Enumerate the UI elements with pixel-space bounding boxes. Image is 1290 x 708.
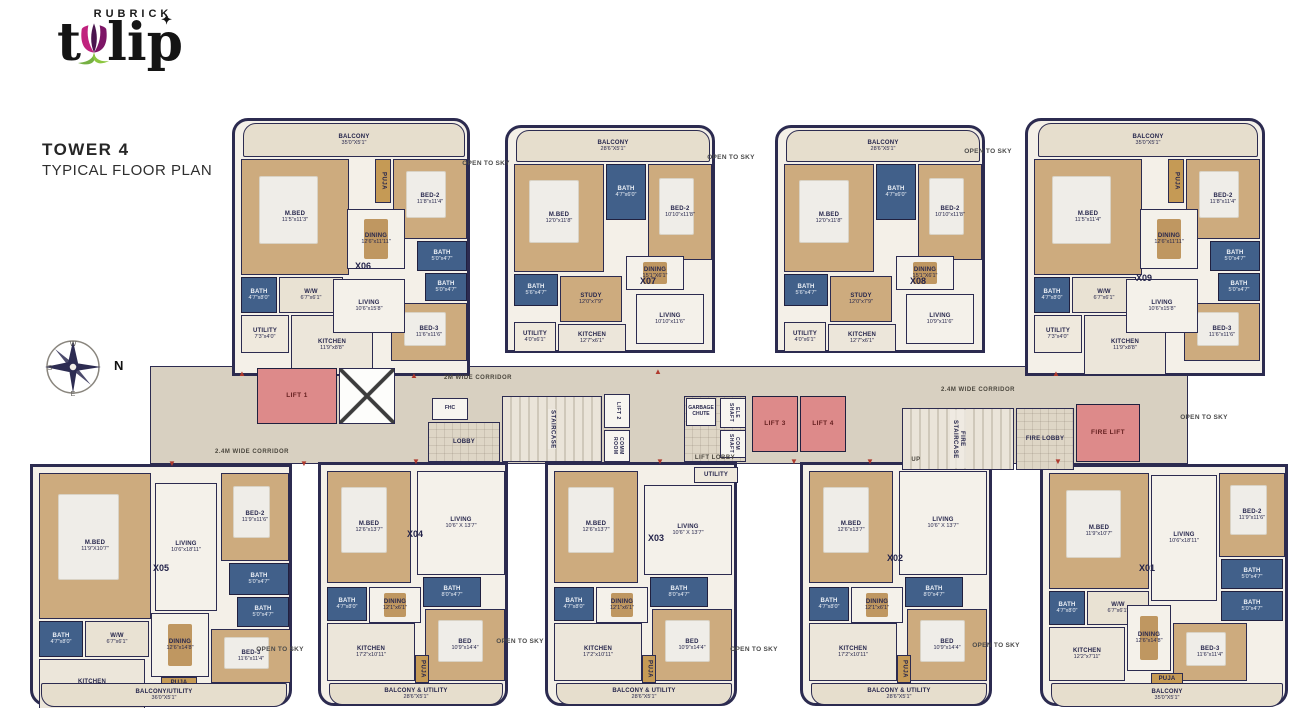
dining-room: DINING12'6"x14'8" — [151, 613, 209, 677]
bed-2-room: BED-211'9"x11'6" — [1219, 473, 1285, 557]
kitchen-room: KITCHEN12'2"x7'11" — [1049, 627, 1125, 681]
utility-room: UTILITY7'3"x4'0" — [241, 315, 289, 353]
unit-number-label: X09 — [1136, 273, 1152, 283]
living-room: LIVING10'6"x18'11" — [155, 483, 217, 611]
bath-room: BATH5'0"x4'7" — [1218, 273, 1260, 301]
dining-room: DINING12'6"x11'11" — [1140, 209, 1198, 269]
bath-room: BATH8'0"x4'7" — [905, 577, 963, 607]
bath-room: BATH5'6"x4'7" — [514, 274, 558, 306]
open-to-sky-label: OPEN TO SKY — [730, 646, 778, 654]
unit-x07: BALCONY28'6"X5'1"M.BED12'0"x11'8"BATH4'7… — [505, 125, 715, 353]
open-to-sky-label: OPEN TO SKY — [256, 646, 304, 654]
staircase: STAIRCASE — [502, 396, 602, 462]
lift-lobby: LIFT LOBBY — [684, 452, 746, 464]
door-arrow-icon: ▼ — [168, 460, 176, 468]
lift-4: LIFT 4 — [800, 396, 846, 452]
puja-room: PUJA — [1168, 159, 1184, 203]
unit-number-label: X02 — [887, 553, 903, 563]
open-to-sky-label: OPEN TO SKY — [964, 148, 1012, 156]
puja-room: PUJA — [375, 159, 391, 203]
dining-room: DINING12'6"x14'8" — [1127, 605, 1171, 671]
m-bed-room: M.BED12'6"x13'7" — [554, 471, 638, 583]
living-room: LIVING10'6"x18'11" — [1151, 475, 1217, 601]
door-arrow-icon: ▲ — [238, 370, 246, 378]
living-room: LIVING10'6" X 13'7" — [899, 471, 987, 575]
m-bed-room: M.BED12'6"x13'7" — [327, 471, 411, 583]
unit-number-label: X04 — [407, 529, 423, 539]
bath-room: BATH4'7"x8'0" — [809, 587, 849, 621]
kitchen-room: KITCHEN17'2"x10'11" — [554, 623, 642, 681]
door-arrow-icon: ▼ — [412, 458, 420, 466]
utility-room: UTILITY7'3"x4'0" — [1034, 315, 1082, 353]
unit-x09: BALCONY35'0"X5'1"M.BED11'5"x11'4"PUJABED… — [1025, 118, 1265, 376]
bed-3-room: BED-311'6"x11'4" — [1173, 623, 1247, 681]
lift-1: LIFT 1 — [257, 368, 337, 424]
m-bed-room: M.BED11'5"x11'4" — [1034, 159, 1142, 275]
unit-number-label: X07 — [640, 276, 656, 286]
lift-2: LIFT 2 — [604, 394, 630, 428]
living-room: LIVING10'6"x15'8" — [1126, 279, 1198, 333]
bed-room: BED10'9"x14'4" — [652, 609, 732, 681]
2m-wide-corridor: 2M WIDE CORRIDOR — [428, 372, 528, 384]
door-arrow-icon: ▲ — [1052, 370, 1060, 378]
balcony-room: BALCONY28'6"X5'1" — [786, 130, 980, 162]
utility-room: UTILITY — [694, 467, 738, 483]
bath-room: BATH5'0"x4'7" — [1210, 241, 1260, 271]
dining-room: DINING12'1"x6'1" — [596, 587, 648, 623]
balcony-utility-room: BALCONY & UTILITY28'6"X5'1" — [556, 683, 732, 705]
up: UP — [906, 454, 926, 466]
bed-2-room: BED-210'10"x11'8" — [918, 164, 982, 260]
dining-room: DINING12'1"x6'1" — [851, 587, 903, 623]
bed-room: BED10'9"x14'4" — [425, 609, 505, 681]
bath-room: BATH5'0"x4'7" — [417, 241, 467, 271]
bed-3-room: BED-311'6"x11'4" — [211, 629, 291, 683]
unit-x02: M.BED12'6"x13'7"LIVING10'6" X 13'7"BATH4… — [800, 462, 992, 706]
lift-3: LIFT 3 — [752, 396, 798, 452]
study-room: STUDY12'0"x7'9" — [830, 276, 892, 322]
bath-room: BATH4'7"x8'0" — [1034, 277, 1070, 313]
puja-room: PUJA — [897, 655, 911, 683]
balcony-utility-room: BALCONY & UTILITY28'6"X5'1" — [811, 683, 987, 705]
study-room: STUDY12'0"x7'9" — [560, 276, 622, 322]
open-to-sky-label: OPEN TO SKY — [1180, 414, 1228, 422]
bath-room: BATH8'0"x4'7" — [423, 577, 481, 607]
2-4m-wide-corridor: 2.4M WIDE CORRIDOR — [192, 446, 312, 458]
unit-x03: M.BED12'6"x13'7"UTILITYLIVING10'6" X 13'… — [545, 462, 737, 706]
open-to-sky-label: OPEN TO SKY — [707, 154, 755, 162]
lobby: LOBBY — [428, 422, 500, 462]
unit-number-label: X03 — [648, 533, 664, 543]
unit-x01: M.BED11'9"x10'7"LIVING10'6"x18'11"BED-21… — [1040, 464, 1288, 706]
balcony-room: BALCONY35'0"X5'1" — [1038, 123, 1258, 157]
fhc: FHC — [432, 398, 468, 420]
bath-room: BATH5'0"x4'7" — [1221, 559, 1283, 589]
open-to-sky-label: OPEN TO SKY — [972, 642, 1020, 650]
floor-plan-page: RUBRICK t lip ✦ TOWER 4 TYPICAL FLOOR PL… — [0, 0, 1290, 708]
m-bed-room: M.BED12'0"x11'8" — [784, 164, 874, 272]
unit-x08: BALCONY28'6"X5'1"M.BED12'0"x11'8"BATH4'7… — [775, 125, 985, 353]
bath-room: BATH8'0"x4'7" — [650, 577, 708, 607]
bed-2-room: BED-210'10"x11'8" — [648, 164, 712, 260]
comm-room: COMM ROOM — [604, 430, 630, 462]
kitchen-room: KITCHEN12'7"x6'1" — [558, 324, 626, 352]
kitchen-room: KITCHEN17'2"x10'11" — [809, 623, 897, 681]
bath-room: BATH5'6"x4'7" — [784, 274, 828, 306]
utility-room: UTILITY4'0"x6'1" — [514, 322, 556, 352]
living-room: LIVING10'6" X 13'7" — [644, 485, 732, 575]
bath-room: BATH5'0"x4'7" — [1221, 591, 1283, 621]
m-bed-room: M.BED11'5"x11'3" — [241, 159, 349, 275]
living-room: LIVING10'10"x11'6" — [636, 294, 704, 344]
m-bed-room: M.BED11'9"X10'7" — [39, 473, 151, 619]
bath-room: BATH4'7"x8'0" — [241, 277, 277, 313]
unit-number-label: X01 — [1139, 563, 1155, 573]
puja-room: PUJA — [642, 655, 656, 683]
door-arrow-icon: ▼ — [300, 460, 308, 468]
balcony-room: BALCONY35'0"X5'1" — [1051, 683, 1283, 707]
bath-room: BATH4'7"x8'0" — [39, 621, 83, 657]
balcony-utility-room: BALCONY/UTILITY36'0"X5'1" — [41, 683, 287, 707]
fire-lobby: FIRE LOBBY — [1016, 408, 1074, 470]
fire-lift: FIRE LIFT — [1076, 404, 1140, 462]
balcony-room: BALCONY28'6"X5'1" — [516, 130, 710, 162]
door-arrow-icon: ▼ — [656, 458, 664, 466]
kitchen-room: KITCHEN12'7"x6'1" — [828, 324, 896, 352]
dining-room: DINING12'6"x11'11" — [347, 209, 405, 269]
unit-x04: M.BED12'6"x13'7"LIVING10'6" X 13'7"BATH4… — [318, 462, 508, 706]
open-to-sky-label: OPEN TO SKY — [496, 638, 544, 646]
kitchen-room: KITCHEN17'2"x10'11" — [327, 623, 415, 681]
unit-x06: BALCONY35'0"X5'1"M.BED11'5"x11'3"PUJABED… — [232, 118, 470, 376]
door-arrow-icon: ▲ — [654, 368, 662, 376]
balcony-utility-room: BALCONY & UTILITY28'6"X5'1" — [329, 683, 503, 705]
garbage-chute: GARBAGE CHUTE — [686, 398, 716, 426]
bath-room: BATH5'0"x4'7" — [229, 563, 289, 595]
2-4m-wide-corridor: 2.4M WIDE CORRIDOR — [918, 384, 1038, 396]
bath-room: BATH4'7"x8'0" — [1049, 591, 1085, 625]
door-arrow-icon: ▼ — [1054, 458, 1062, 466]
utility-room: UTILITY4'0"x6'1" — [784, 322, 826, 352]
door-arrow-icon: ▲ — [410, 372, 418, 380]
living-room: LIVING10'6" X 13'7" — [417, 471, 505, 575]
m-bed-room: M.BED12'0"x11'8" — [514, 164, 604, 272]
bath-room: BATH4'7"x8'0" — [554, 587, 594, 621]
unit-number-label: X06 — [355, 261, 371, 271]
shaftx — [339, 368, 395, 424]
puja-room: PUJA — [415, 655, 429, 683]
w-w-room: W/W6'7"x6'1" — [85, 621, 149, 657]
bath-room: BATH4'7"x6'0" — [876, 164, 916, 220]
bath-room: BATH4'7"x8'0" — [327, 587, 367, 621]
unit-number-label: X05 — [153, 563, 169, 573]
floor-plan: LIFT 1FHCLOBBYSTAIRCASELIFT 2COMM ROOMGA… — [0, 0, 1290, 708]
dining-room: DINING12'1"x6'1" — [369, 587, 421, 623]
m-bed-room: M.BED12'6"x13'7" — [809, 471, 893, 583]
bath-room: BATH5'0"x4'7" — [425, 273, 467, 301]
unit-number-label: X08 — [910, 276, 926, 286]
bath-room: BATH4'7"x6'0" — [606, 164, 646, 220]
bath-room: BATH5'0"x4'7" — [237, 597, 289, 627]
living-room: LIVING10'9"x11'6" — [906, 294, 974, 344]
door-arrow-icon: ▼ — [866, 458, 874, 466]
m-bed-room: M.BED11'9"x10'7" — [1049, 473, 1149, 589]
bed-2-room: BED-211'9"x11'6" — [221, 473, 289, 561]
ele-shaft: ELE SHAFT — [720, 398, 746, 428]
door-arrow-icon: ▼ — [790, 458, 798, 466]
balcony-room: BALCONY35'0"X5'1" — [243, 123, 465, 157]
open-to-sky-label: OPEN TO SKY — [462, 160, 510, 168]
unit-x05: M.BED11'9"X10'7"LIVING10'6"x18'11"BED-21… — [30, 464, 292, 706]
living-room: LIVING10'6"x15'8" — [333, 279, 405, 333]
